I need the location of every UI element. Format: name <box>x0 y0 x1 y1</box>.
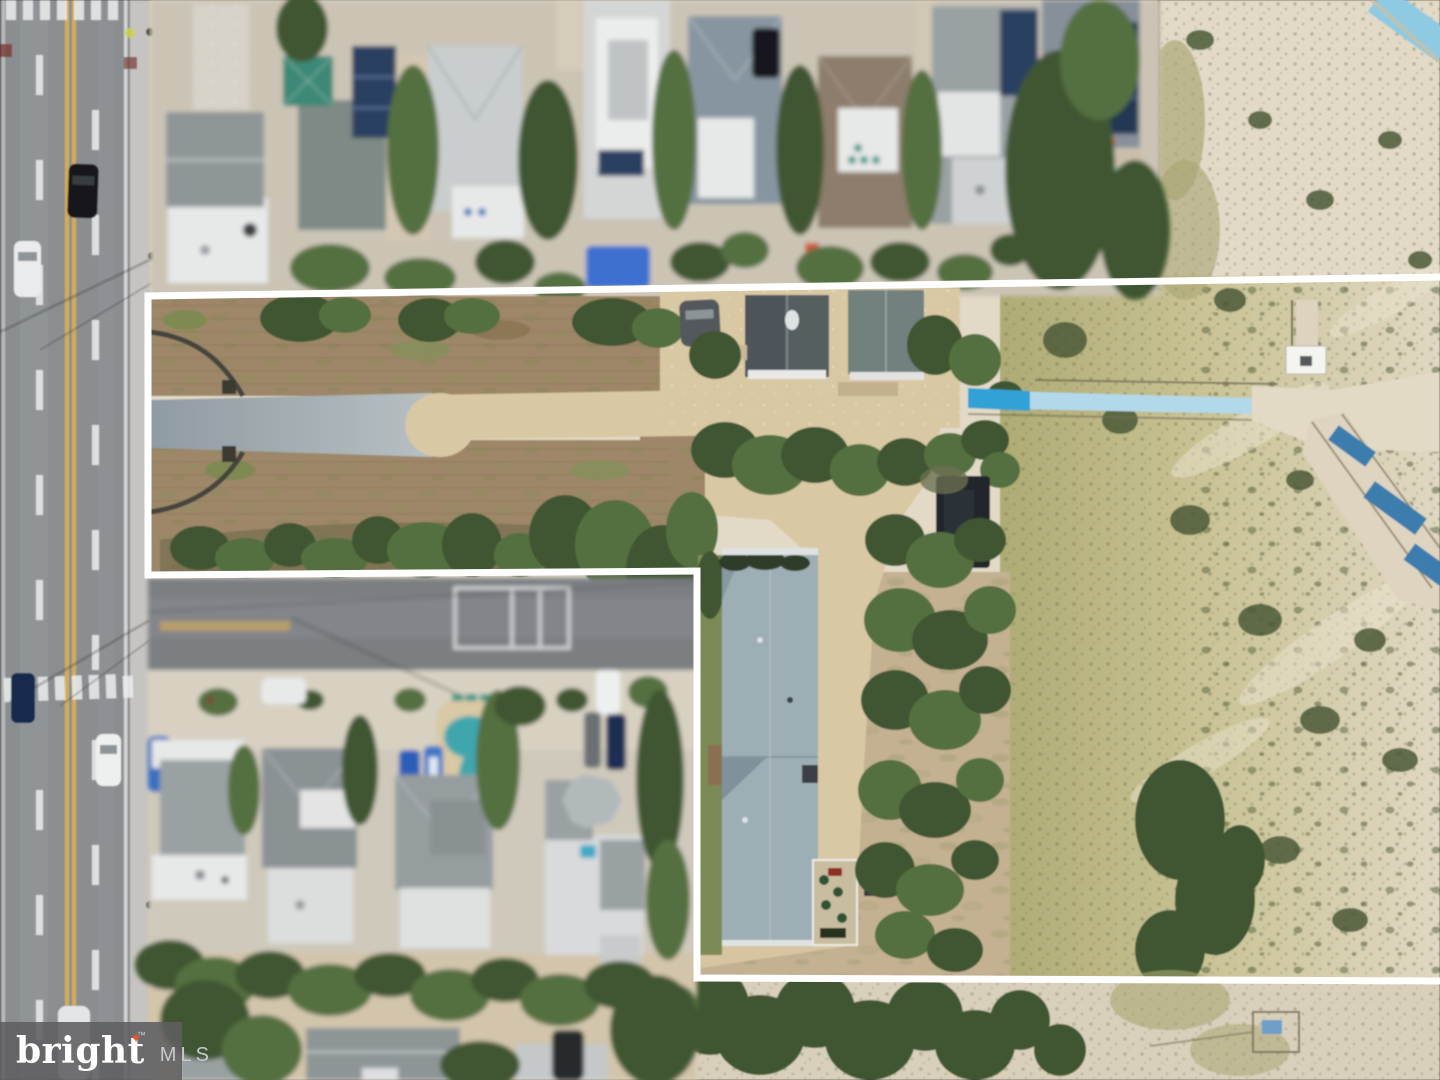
logo-mls-text: MLS <box>160 1044 213 1067</box>
car-navy <box>11 673 35 723</box>
parked-car-bottom <box>552 1030 584 1080</box>
car-dark-suv <box>67 163 99 218</box>
building-deck <box>813 860 857 945</box>
car-white-south <box>96 734 121 786</box>
cottage-1 <box>745 295 829 379</box>
aerial-scene <box>0 0 1440 1080</box>
main-building <box>719 548 818 946</box>
house-c <box>395 775 493 948</box>
parked-car-dark <box>752 28 780 78</box>
logo-tm: ™ <box>137 1030 146 1040</box>
house-5 <box>688 16 782 204</box>
residential-block <box>135 578 700 1080</box>
watermark-logo: bright✦™MLS <box>0 1022 182 1080</box>
hot-tub <box>580 845 596 858</box>
car-white-north <box>14 241 41 297</box>
solar-panels <box>598 150 644 176</box>
top-houses-row <box>150 0 1170 304</box>
double-yellow-line <box>65 0 69 1080</box>
house-1 <box>166 112 268 283</box>
house-3 <box>428 46 524 238</box>
covered-pool-tarp <box>586 246 650 288</box>
aerial-listing-photo: bright✦™MLS <box>0 0 1440 1080</box>
logo-brand-text: bright <box>16 1033 145 1069</box>
